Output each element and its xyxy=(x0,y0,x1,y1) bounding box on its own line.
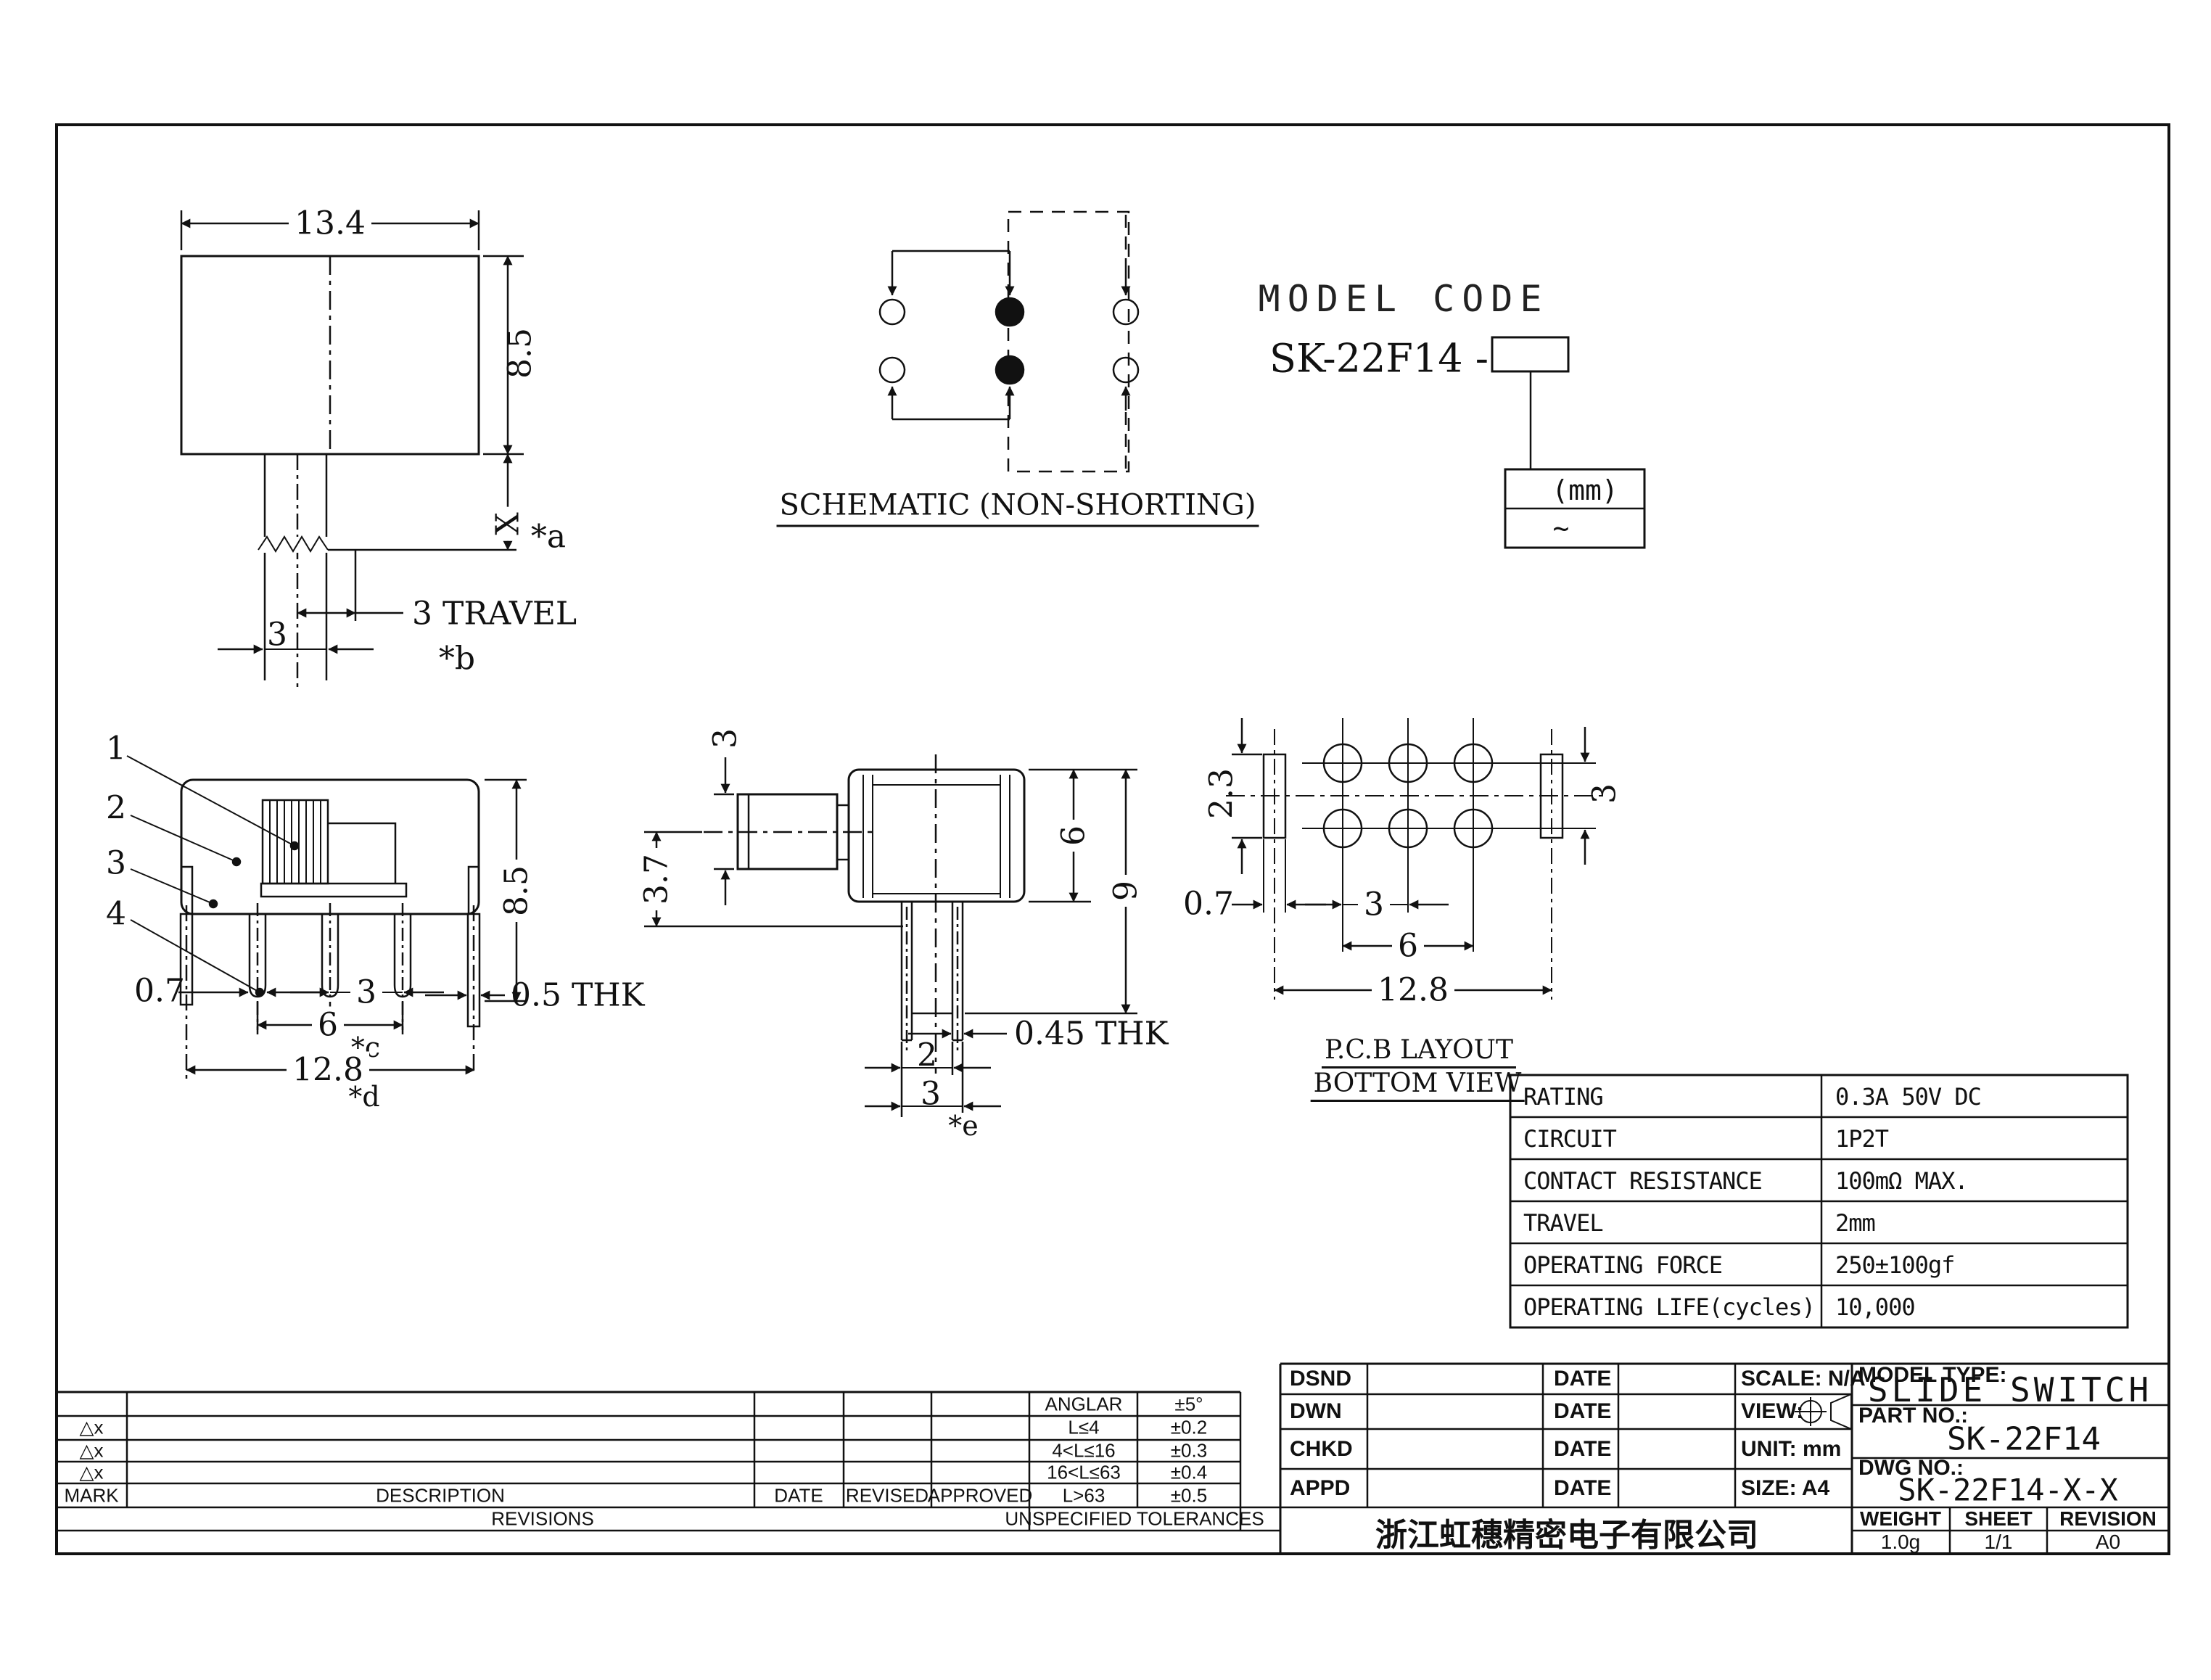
titleblock-view-label: VIEW: xyxy=(1741,1399,1803,1424)
sheet-value: 1/1 xyxy=(1985,1531,2013,1554)
model-code-base: SK-22F14 - xyxy=(1269,336,1489,382)
tol-value-anglar: ±5° xyxy=(1174,1393,1203,1416)
rev-mark-row2: △x xyxy=(80,1440,104,1462)
spec-label-circuit: CIRCUIT xyxy=(1523,1125,1616,1153)
callout-2: 2 xyxy=(106,790,126,827)
titleblock-date-3: DATE xyxy=(1554,1437,1611,1462)
dim-knob-offset: 3.7 xyxy=(638,848,675,910)
dim-slot-width: 0.7 xyxy=(1183,886,1234,923)
tol-range-1: L≤4 xyxy=(1068,1417,1099,1439)
titleblock-dwn: DWN xyxy=(1290,1399,1342,1424)
spec-label-operating-force: OPERATING FORCE xyxy=(1523,1251,1722,1279)
dim-slot-height: 2.3 xyxy=(1203,768,1240,819)
note-e: *e xyxy=(948,1110,979,1142)
tol-value-3: ±0.4 xyxy=(1171,1462,1207,1484)
dim-lead-thickness: 0.45 THK xyxy=(1014,1016,1169,1053)
model-code-unit: (mm) xyxy=(1552,474,1618,506)
rev-header-description: DESCRIPTION xyxy=(376,1485,505,1507)
callout-1: 1 xyxy=(106,730,126,767)
dim-leg-pitch: 3 xyxy=(350,974,382,1011)
pcb-title: P.C.B LAYOUT xyxy=(1322,1035,1516,1068)
titleblock-chkd: CHKD xyxy=(1290,1437,1353,1462)
titleblock-date-1: DATE xyxy=(1554,1367,1611,1391)
titleblock-date-4: DATE xyxy=(1554,1476,1611,1501)
spec-value-circuit: 1P2T xyxy=(1835,1125,1888,1153)
spec-label-operating-life: OPERATING LIFE(cycles) xyxy=(1523,1293,1815,1321)
dim-body-depth: 6 xyxy=(1055,820,1092,852)
dim-tab-thickness: 0.5 THK xyxy=(511,977,645,1014)
dim-hole-span: 6 xyxy=(1392,928,1424,965)
dim-lead-pitch: 3 xyxy=(267,617,287,654)
spec-label-contact-resistance: CONTACT RESISTANCE xyxy=(1523,1167,1762,1195)
spec-value-travel: 2mm xyxy=(1835,1209,1875,1237)
spec-label-travel: TRAVEL xyxy=(1523,1209,1603,1237)
tol-value-2: ±0.3 xyxy=(1171,1440,1207,1462)
titleblock-size: SIZE: A4 xyxy=(1741,1476,1829,1501)
titleblock-unit: UNIT: mm xyxy=(1741,1437,1841,1462)
model-code-title: MODEL CODE xyxy=(1258,278,1549,320)
callout-4: 4 xyxy=(106,896,126,933)
rev-header-revised: REVISED xyxy=(846,1485,929,1507)
model-code-tilde: ~ xyxy=(1553,512,1570,544)
part-no-value: SK-22F14 xyxy=(1947,1421,2101,1458)
tol-range-4: L>63 xyxy=(1063,1485,1105,1507)
spec-value-operating-force: 250±100gf xyxy=(1835,1251,1954,1279)
dim-slot-span: 12.8 xyxy=(1372,972,1454,1009)
spec-value-operating-life: 10,000 xyxy=(1835,1293,1915,1321)
tol-header: UNSPECIFIED TOLERANCES xyxy=(1005,1508,1264,1531)
dim-hole-row-pitch: 3 xyxy=(1586,783,1623,804)
tol-range-2: 4<L≤16 xyxy=(1052,1440,1115,1462)
dwg-no-value: SK-22F14-X-X xyxy=(1898,1473,2117,1508)
note-b: *b xyxy=(439,641,475,678)
pcb-subtitle: BOTTOM VIEW xyxy=(1311,1068,1525,1102)
dim-row-pitch-2: 2 xyxy=(917,1037,937,1074)
dim-hole-pitch: 3 xyxy=(1358,886,1390,923)
sheet-label: SHEET xyxy=(1964,1507,2032,1531)
dim-body-width: 13.4 xyxy=(289,205,371,242)
revision-label: REVISION xyxy=(2059,1507,2157,1531)
dim-overall-depth: 9 xyxy=(1108,875,1145,907)
tol-range-anglar: ANGLAR xyxy=(1045,1393,1123,1416)
dim-leg-span: 6 xyxy=(312,1007,344,1044)
rev-header-approved: APPROVED xyxy=(928,1485,1033,1507)
rev-footer: REVISIONS xyxy=(491,1508,594,1531)
rev-mark-row3: △x xyxy=(80,1462,104,1484)
revision-value: A0 xyxy=(2096,1531,2120,1554)
dim-row-pitch-3: 3 xyxy=(921,1076,941,1113)
note-a: *a xyxy=(531,519,566,556)
titleblock-appd: APPD xyxy=(1290,1476,1350,1501)
weight-value: 1.0g xyxy=(1881,1531,1921,1554)
titleblock-date-2: DATE xyxy=(1554,1399,1611,1424)
titleblock-scale: SCALE: N/A xyxy=(1741,1367,1866,1391)
tol-range-3: 16<L≤63 xyxy=(1047,1462,1121,1484)
note-d: *d xyxy=(348,1081,379,1113)
dim-travel: 3 TRAVEL xyxy=(412,596,577,633)
dim-lead-length: X xyxy=(490,506,527,540)
weight-label: WEIGHT xyxy=(1860,1507,1941,1531)
titleblock-dsnd: DSND xyxy=(1290,1367,1351,1391)
callout-3: 3 xyxy=(106,845,126,882)
dim-side-height: 8.5 xyxy=(498,860,535,922)
company-name: 浙江虹穗精密电子有限公司 xyxy=(1375,1509,1758,1555)
drawing-sheet: 13.4 8.5 X *a 3 TRAVEL *b 3 SCHEMATIC (N… xyxy=(0,0,2211,1680)
schematic-title: SCHEMATIC (NON-SHORTING) xyxy=(777,489,1259,527)
tol-value-1: ±0.2 xyxy=(1171,1417,1207,1439)
tol-value-4: ±0.5 xyxy=(1171,1485,1207,1507)
rev-header-date: DATE xyxy=(774,1485,823,1507)
rev-header-mark: MARK xyxy=(64,1485,118,1507)
spec-value-contact-resistance: 100mΩ MAX. xyxy=(1835,1167,1968,1195)
dim-body-height: 8.5 xyxy=(502,328,539,379)
rev-mark-row1: △x xyxy=(80,1417,104,1439)
spec-value-rating: 0.3A 50V DC xyxy=(1835,1083,1981,1111)
spec-label-rating: RATING xyxy=(1523,1083,1603,1111)
dim-tab-width: 0.7 xyxy=(134,973,185,1010)
dim-knob-height: 3 xyxy=(707,728,744,749)
